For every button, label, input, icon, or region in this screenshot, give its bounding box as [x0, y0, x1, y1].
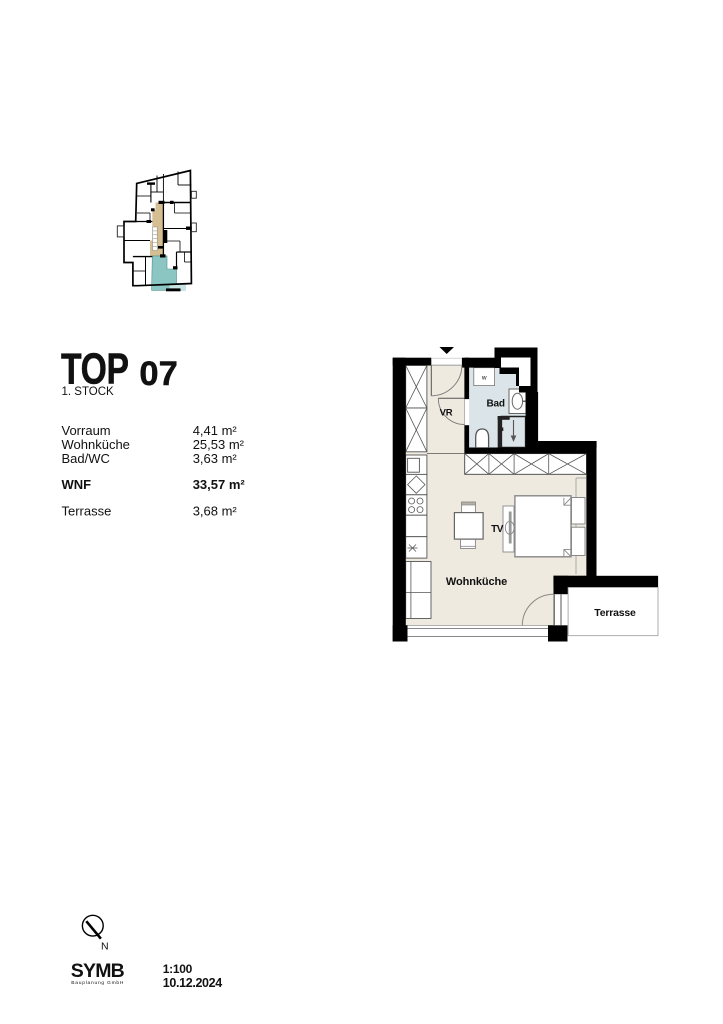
svg-text:33,57 m²: 33,57 m²	[193, 477, 246, 492]
svg-text:Bad/WC: Bad/WC	[62, 451, 110, 466]
svg-text:Terrasse: Terrasse	[62, 503, 112, 518]
svg-text:25,53 m²: 25,53 m²	[193, 437, 245, 452]
svg-text:Vorraum: Vorraum	[62, 423, 111, 438]
svg-text:07: 07	[139, 355, 177, 393]
svg-text:Bad: Bad	[486, 398, 504, 409]
svg-text:N: N	[101, 941, 109, 953]
svg-text:Bauplanung GmbH: Bauplanung GmbH	[71, 980, 124, 986]
svg-text:w: w	[481, 374, 487, 381]
svg-text:SYMB: SYMB	[71, 960, 125, 982]
svg-text:Wohnküche: Wohnküche	[62, 437, 130, 452]
svg-text:3,63 m²: 3,63 m²	[193, 451, 238, 466]
svg-text:TV: TV	[491, 524, 504, 535]
svg-text:Terrasse: Terrasse	[594, 607, 636, 619]
svg-text:Wohnküche: Wohnküche	[446, 576, 507, 588]
svg-text:VR: VR	[440, 407, 453, 418]
svg-text:1. STOCK: 1. STOCK	[62, 386, 115, 398]
svg-text:1:100: 1:100	[163, 962, 193, 976]
svg-text:4,41 m²: 4,41 m²	[193, 423, 238, 438]
svg-text:WNF: WNF	[62, 477, 92, 492]
svg-text:10.12.2024: 10.12.2024	[163, 976, 222, 990]
svg-text:3,68 m²: 3,68 m²	[193, 503, 238, 518]
